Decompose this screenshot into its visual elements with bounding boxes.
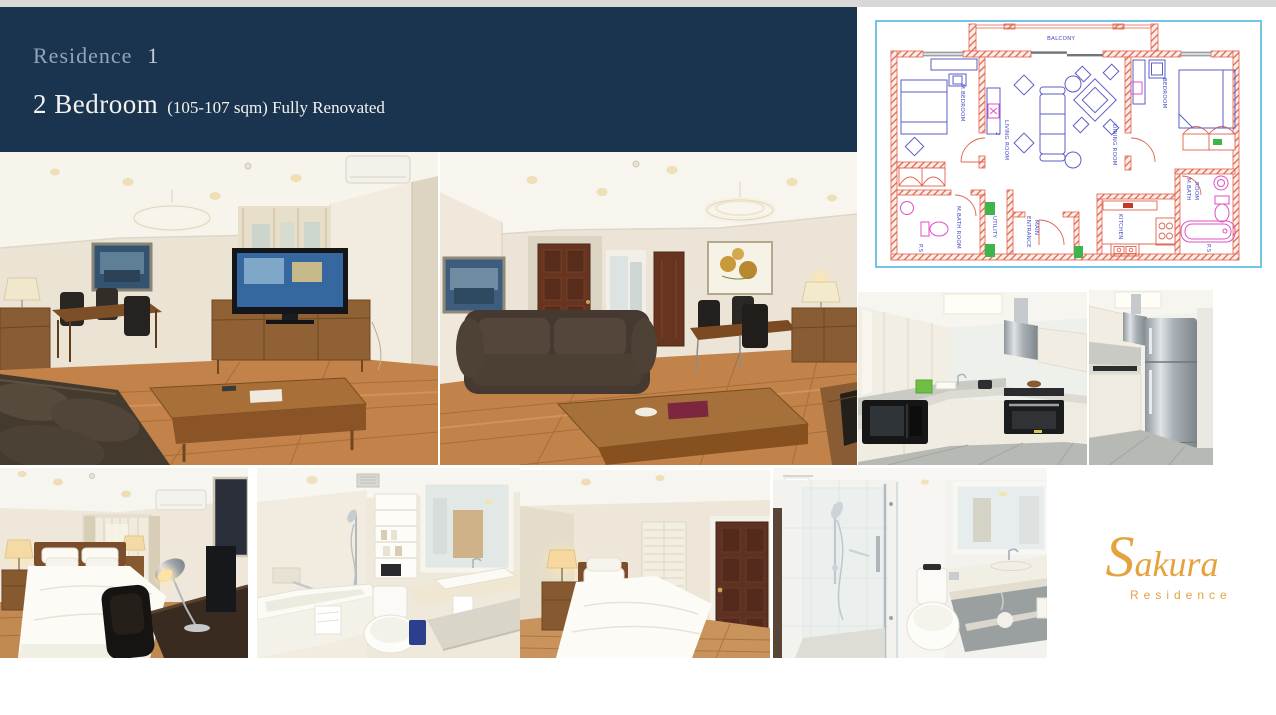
mirror [423, 482, 511, 570]
tissue-box [381, 564, 401, 576]
ceiling [773, 468, 1047, 480]
label-entrance: ENTRANCE [1025, 216, 1031, 248]
furniture [901, 59, 1235, 168]
waste-bin [409, 620, 426, 645]
ceiling [520, 470, 770, 506]
downlight [921, 479, 929, 484]
label-bedroom: BEDROOM [1161, 78, 1167, 109]
photo-kitchen-1 [858, 292, 1087, 465]
wall-art-left [444, 258, 504, 312]
wall-niche [273, 568, 300, 583]
ac-unit [156, 490, 206, 510]
residence-number: 1 [147, 43, 159, 68]
cooktop [1004, 388, 1064, 396]
room-labels: BALCONY M.BEDROOM LIVING ROOM 2 DINING R… [917, 36, 1211, 253]
wardrobes [899, 127, 1235, 187]
sofa [456, 310, 657, 394]
balcony-railing [976, 25, 1151, 28]
second-door [654, 252, 684, 346]
brand-name: Sakura [1094, 519, 1230, 594]
rolled-towel [997, 612, 1013, 628]
base-cabinets [1089, 374, 1141, 438]
label-kitchen: KITCHEN [1117, 214, 1123, 240]
brand-logo: Sakura Residence [1094, 519, 1230, 605]
desk-chair [100, 584, 155, 658]
smoke-detector [245, 163, 251, 169]
photo-kitchen-2 [1089, 290, 1213, 465]
smoke-detector [633, 161, 639, 167]
smoke-detector [90, 474, 95, 479]
wall-art [214, 478, 248, 556]
photo-bedroom-2 [520, 470, 770, 658]
label-main: MAIN [1033, 220, 1039, 235]
mirror [955, 484, 1047, 552]
photo-bedroom-1 [0, 468, 248, 658]
label-balcony: BALCONY [1047, 36, 1075, 42]
top-divider-strip [0, 0, 1276, 7]
label-utility: UTILITY [991, 216, 997, 239]
label-living-room-number: 2 [994, 132, 1000, 136]
photo-living-room-1 [0, 152, 438, 465]
photo-bathroom-1 [257, 468, 520, 658]
towel-edge [1037, 598, 1047, 618]
wall-right [1197, 308, 1213, 465]
floor-plan: BALCONY M.BEDROOM LIVING ROOM 2 DINING R… [875, 20, 1262, 268]
label-ps-left: P.S [917, 244, 923, 253]
cooktop [1093, 366, 1137, 371]
label-master-bath-left: M.BATH ROOM [955, 206, 961, 249]
tv [232, 248, 348, 324]
kitchen-fixtures [1102, 201, 1175, 256]
shelving-unit [375, 494, 417, 578]
label-ps-right: P.S [1205, 244, 1211, 253]
unit-details: (105-107 sqm) Fully Renovated [167, 98, 385, 117]
downlight [307, 477, 317, 484]
photo-living-room-2 [440, 152, 857, 465]
glass-handle [876, 536, 880, 572]
residence-word: Residence [33, 43, 132, 68]
photo-bathroom-2 [773, 468, 1047, 658]
refrigerator [1145, 318, 1197, 450]
ceiling-vent [357, 474, 379, 487]
slide-canvas: Residence1 2 Bedroom (105-107 sqm) Fully… [0, 0, 1276, 715]
unit-type: 2 Bedroom [33, 89, 158, 119]
label-living-room: LIVING ROOM [1003, 120, 1009, 160]
ac-unit [346, 156, 410, 183]
tv [206, 546, 236, 612]
paper-holder [949, 572, 959, 580]
microwave [862, 400, 928, 444]
wall-art [93, 244, 151, 290]
downlight-2 [656, 475, 664, 480]
ceiling-light [944, 294, 1002, 314]
bath-fixtures [901, 82, 1236, 242]
label-master-bedroom: M.BEDROOM [959, 84, 965, 122]
unit-title: 2 Bedroom (105-107 sqm) Fully Renovated [33, 89, 385, 120]
built-in-oven [1004, 400, 1064, 434]
label-master-bath-right-2: ROOM [1193, 182, 1199, 200]
door-jamb-sliver [773, 508, 782, 658]
header-banner: Residence1 2 Bedroom (105-107 sqm) Fully… [0, 7, 857, 152]
floor-plan-drawing: BALCONY M.BEDROOM LIVING ROOM 2 DINING R… [877, 22, 1260, 266]
label-master-bath-right-1: M.BATH [1185, 178, 1191, 201]
label-dining-room: DINING ROOM [1111, 124, 1117, 166]
residence-label: Residence1 [33, 43, 159, 69]
wall-art-right [708, 242, 772, 294]
downlight [582, 479, 591, 485]
